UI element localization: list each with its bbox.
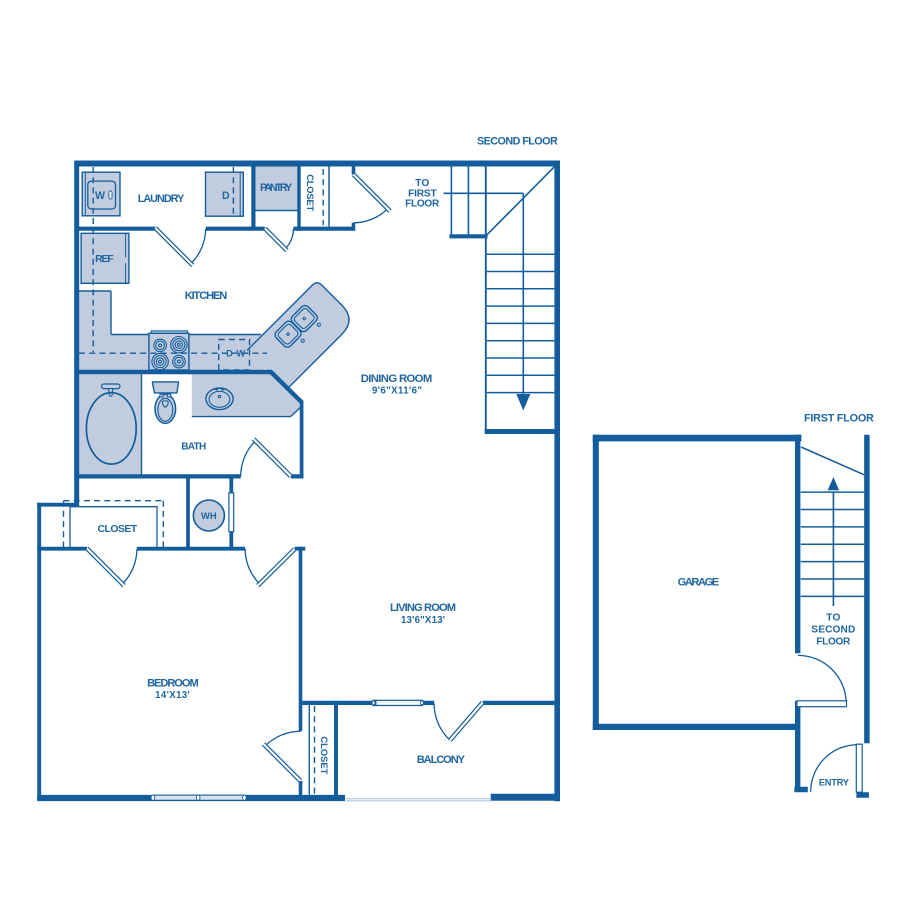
svg-text:D: D (222, 190, 230, 202)
svg-text:BEDROOM: BEDROOM (147, 678, 199, 690)
svg-text:CLOSET: CLOSET (319, 736, 330, 774)
svg-text:BALCONY: BALCONY (417, 754, 466, 766)
svg-text:DW: DW (226, 349, 245, 359)
svg-text:LAUNDRY: LAUNDRY (138, 193, 185, 205)
svg-text:SECOND FLOOR: SECOND FLOOR (477, 136, 558, 148)
svg-text:REF: REF (95, 254, 114, 265)
svg-text:SECOND: SECOND (811, 625, 855, 636)
svg-text:FLOOR: FLOOR (816, 637, 851, 648)
svg-text:TO: TO (415, 178, 429, 189)
svg-text:KITCHEN: KITCHEN (185, 290, 228, 302)
svg-text:CLOSET: CLOSET (98, 524, 138, 535)
svg-text:FIRST FLOOR: FIRST FLOOR (804, 413, 874, 425)
svg-text:13'6"X13': 13'6"X13' (401, 615, 445, 626)
svg-text:GARAGE: GARAGE (678, 577, 720, 589)
svg-text:WH: WH (201, 510, 217, 521)
svg-text:LIVING ROOM: LIVING ROOM (390, 602, 456, 614)
svg-text:TO: TO (826, 613, 840, 624)
svg-text:BATH: BATH (181, 441, 206, 452)
svg-text:9'6"X11'6": 9'6"X11'6" (372, 386, 422, 397)
svg-text:DINING ROOM: DINING ROOM (361, 373, 433, 385)
svg-text:FLOOR: FLOOR (405, 199, 440, 210)
svg-text:W: W (95, 190, 105, 202)
svg-text:14'X13': 14'X13' (155, 690, 190, 701)
svg-text:PANTRY: PANTRY (260, 182, 293, 194)
svg-text:CLOSET: CLOSET (305, 174, 316, 211)
svg-text:ENTRY: ENTRY (819, 777, 850, 787)
